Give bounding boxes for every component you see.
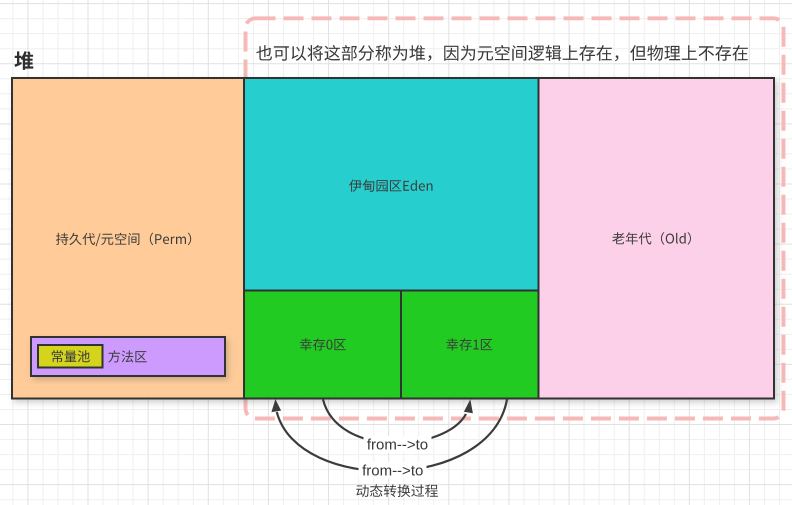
svg-text:from-->to: from-->to [367, 436, 428, 453]
svg-text:from-->to: from-->to [362, 462, 423, 479]
